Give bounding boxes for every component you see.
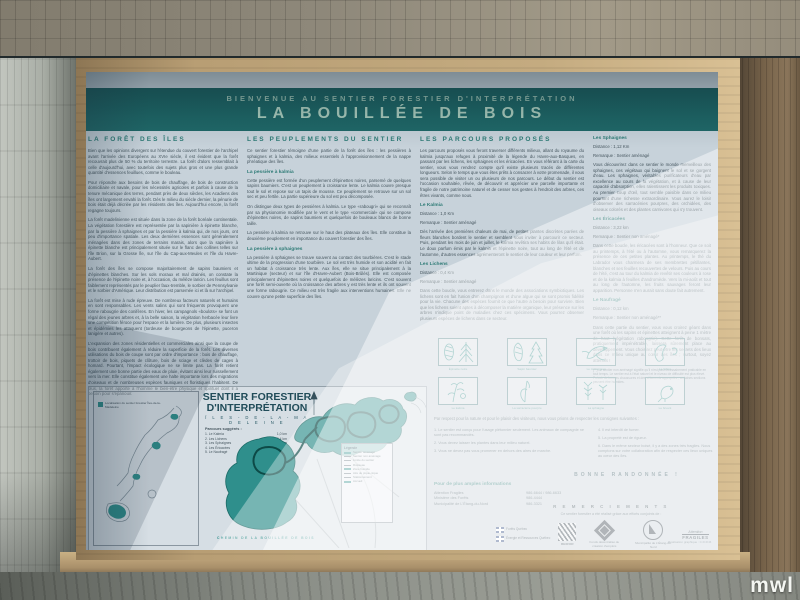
- species-sphaigne: La sphaigne: [576, 377, 616, 410]
- wooden-deck: [0, 572, 800, 600]
- quebec-flag-icon: [496, 536, 504, 542]
- archipelago-outline: [94, 392, 196, 543]
- trail-lichens-remark: Remarque : Sentier aménagé: [420, 279, 584, 285]
- rules-left-column: 1. Le sentier est conçu pour l'usage pié…: [434, 428, 586, 457]
- legend-row: Limite du sentier: [344, 459, 390, 462]
- attention-fragiles-logo: Attention FRAGILES: [682, 530, 708, 540]
- legend-row: Accueil: [344, 480, 390, 483]
- rexfor-logo: REXFOR: [558, 523, 576, 546]
- wooden-post-right: [736, 58, 800, 600]
- credits-line: Ce sentier forestier a été réalisé grâce…: [486, 512, 718, 516]
- banner-subtitle: BIENVENUE AU SENTIER FORESTIER D'INTERPR…: [86, 94, 718, 103]
- inset-caption: Localisation du sentier forestier Îles-d…: [105, 402, 168, 409]
- sparrow-illustration: [646, 378, 684, 404]
- inset-legend: Localisation du sentier forestier Îles-d…: [98, 402, 168, 409]
- species-illustrations: Épinette noire Sapin baumier Le mésangea…: [438, 338, 716, 416]
- column2-heading: LES PEUPLEMENTS DU SENTIER: [247, 136, 411, 143]
- lichen-illustration: [646, 339, 684, 365]
- cone-and-fir-illustration: [508, 339, 546, 365]
- banner-title: LA BOUILLÉE DE BOIS: [86, 105, 718, 123]
- trail-sphaignes-distance: Distance : 1,12 Km: [593, 144, 711, 150]
- trail-kalmia-distance: Distance : 1,0 Km: [420, 211, 584, 217]
- trail-naufrage-title: Le Naufragé: [593, 298, 711, 303]
- paragraph: La pessière à kalmia se retrouve sur le …: [247, 230, 411, 241]
- rule-item: 2. Vous devez laisser les plantes dans l…: [434, 441, 586, 446]
- species-sarracenie: La sarracénie pourpre: [507, 377, 547, 410]
- map-road-label: CHEMIN DE LA BOUILLÉE DE BOIS: [201, 536, 331, 540]
- rule-item: 5. La propreté est de rigueur.: [598, 436, 716, 441]
- credits-heading: R E M E R C I E M E N T S: [506, 504, 716, 509]
- trail-ericacees-remark: Remarque : Sentier non aménagé*: [593, 234, 711, 240]
- municipalite-logo: Municipalité de L'Étang-du-Nord: [632, 520, 674, 549]
- quebec-government-logos: Forêts Québec Énergie et Ressources Québ…: [496, 527, 550, 542]
- paragraph: On distingue deux types de pessières à k…: [247, 204, 411, 226]
- subheading-pessiere-kalmia: La pessière à kalmia: [247, 170, 411, 175]
- cone-and-spruce-illustration: [439, 339, 477, 365]
- pitcher-plant-illustration: [508, 378, 546, 404]
- paragraph: La forêt des îles se compose majoritaire…: [88, 266, 238, 294]
- trail-naufrage-remark: Remarque : Sentier non aménagé**: [593, 315, 711, 321]
- column-foret-des-iles: LA FORÊT DES ÎLES Bien que les opinions …: [88, 136, 238, 401]
- legend-row: Stationnement: [344, 476, 390, 479]
- paragraph: Dans cette boucle, vous entrerez dans le…: [420, 288, 584, 321]
- info-heading: Pour de plus amples informations: [434, 482, 511, 487]
- species-sapin-baumier: Sapin baumier: [507, 338, 547, 371]
- paragraph: Bien que les opinions divergent sur l'ét…: [88, 148, 238, 176]
- species-bruant: Le bruant: [645, 377, 685, 410]
- trail-kalmia-title: Le Kalmia: [420, 203, 584, 208]
- species-epinette-noire: Épinette noire: [438, 338, 478, 371]
- trail-kalmia-remark: Remarque : Sentier aménagé: [420, 220, 584, 226]
- trail-map-block: Localisation du sentier forestier Îles-d…: [88, 386, 427, 550]
- trail-sphaignes-title: Les Sphaignes: [593, 136, 711, 141]
- sign-wood-frame: BIENVENUE AU SENTIER FORESTIER D'INTERPR…: [76, 58, 740, 560]
- trail-lichens-distance: Distance : 0,4 Km: [420, 270, 584, 276]
- rule-item: 1. Le sentier est conçu pour l'usage pié…: [434, 428, 586, 438]
- quebec-flag-icon: [496, 527, 504, 533]
- column-peuplements: LES PEUPLEMENTS DU SENTIER Ce sentier fo…: [247, 136, 411, 401]
- title-banner: BIENVENUE AU SENTIER FORESTIER D'INTERPR…: [86, 88, 718, 131]
- paragraph: Cette pessière est formée d'un peuplemen…: [247, 178, 411, 200]
- forets-quebec-logo: Forêts Québec: [496, 527, 550, 533]
- islands-inset-map: Localisation du sentier forestier Îles-d…: [93, 391, 199, 546]
- trail-ericacees-distance: Distance : 3,22 km: [593, 225, 711, 231]
- paragraph: La forêt est mise à rude épreuve. De nom…: [88, 298, 238, 337]
- subheading-pessiere-sphaignes: La pessière à sphaignes: [247, 247, 411, 252]
- trail-sphaignes-remark: Remarque : Sentier aménagé: [593, 153, 711, 159]
- trail-location-swatch: [98, 402, 103, 407]
- rule-item: 3. Vous ne devez pas vous promener en de…: [434, 449, 586, 454]
- rules-intro: Par respect pour la nature et pour le pl…: [434, 416, 712, 421]
- fonds-logo: Fonds décentralisé de création d'emplois: [584, 521, 624, 548]
- paragraph: Les parcours proposés vous feront traver…: [420, 148, 584, 198]
- trail-ericacees-title: Les Éricacées: [593, 217, 711, 222]
- trail-lichens-title: Les Lichens: [420, 262, 584, 267]
- rule-item: 4. Il est interdit de fumer.: [598, 428, 716, 433]
- rules-right-column: 4. Il est interdit de fumer. 5. La propr…: [598, 428, 716, 462]
- paragraph: La forêt madelinienne est située dans la…: [88, 217, 238, 262]
- sphagnum-illustration: [577, 378, 615, 404]
- kalmia-illustration: [439, 378, 477, 404]
- partner-logos: Forêts Québec Énergie et Ressources Québ…: [496, 520, 718, 549]
- species-kalmia: Le kalmia: [438, 377, 478, 410]
- map-legend: Légende Sentier aménagé Sentier non amén…: [341, 443, 393, 523]
- shingle-roof: [0, 0, 800, 58]
- trail-naufrage-distance: Distance : 0,12 km: [593, 306, 711, 312]
- graphic-credit: Réalisation graphique : C.D.R.M.: [668, 540, 712, 544]
- bonne-randonnee: BONNE RANDONNÉE !: [538, 472, 716, 478]
- paragraph: La pessière à sphaignes se trouve souven…: [247, 255, 411, 300]
- paragraph: Pour répondre aux besoins de bois de cha…: [88, 180, 238, 213]
- sail-circle-icon: [643, 520, 663, 540]
- rule-item: 6. Dans le même secteur boisé, il y a de…: [598, 444, 716, 459]
- energie-ressources-logo: Énergie et Ressources Québec: [496, 536, 550, 542]
- rexfor-stripes-icon: [558, 523, 576, 541]
- column1-heading: LA FORÊT DES ÎLES: [88, 136, 238, 143]
- diamond-icon: [594, 520, 615, 541]
- paragraph: Ce sentier forestier témoigne d'une part…: [247, 148, 411, 165]
- paragraph: Vous découvrirez dans ce sentier le mond…: [593, 162, 711, 212]
- paragraph: Dans cette boucle, les éricacées sont à …: [593, 243, 711, 293]
- bird-illustration: [577, 339, 615, 365]
- species-lichen: Le lichen: [645, 338, 685, 371]
- species-mesangeai: Le mésangeai: [576, 338, 616, 371]
- photo-watermark: mwl: [750, 574, 794, 598]
- paragraph: Dès l'arrivée des premières chaleurs de …: [420, 229, 584, 257]
- column3-heading: LES PARCOURS PROPOSÉS: [420, 136, 584, 143]
- sign-panel: BIENVENUE AU SENTIER FORESTIER D'INTERPR…: [86, 72, 718, 550]
